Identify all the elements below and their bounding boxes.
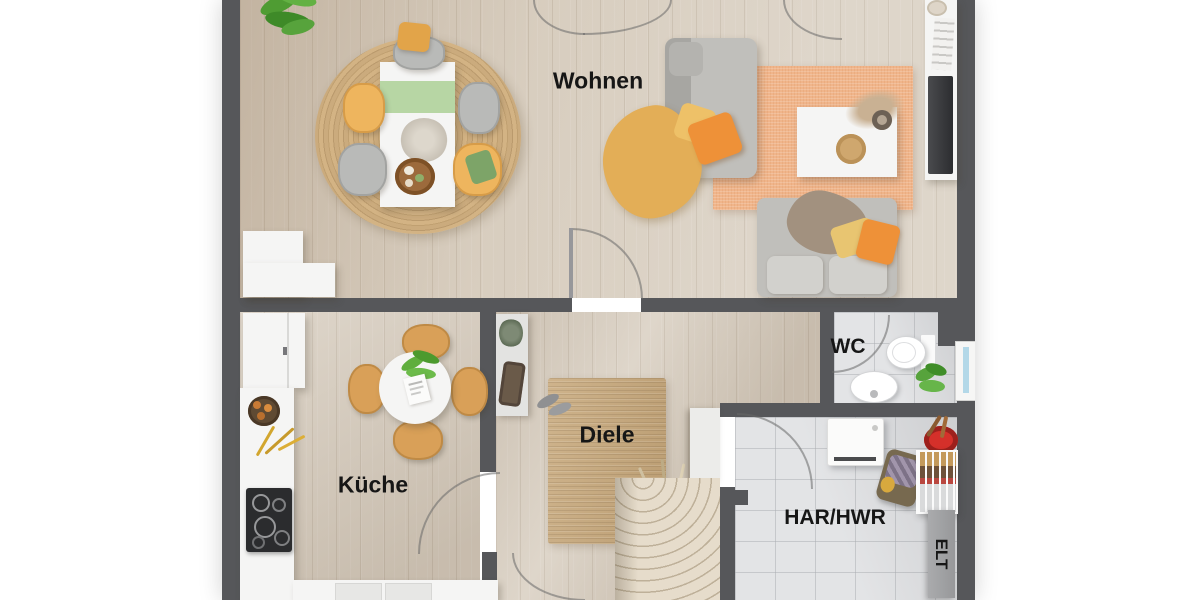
chaise-pillow: [669, 42, 703, 76]
wall-wohnen-south-right: [641, 298, 957, 312]
dining-chair-southwest: [338, 143, 387, 196]
candle: [927, 0, 947, 16]
bag: [498, 361, 526, 408]
room-label-diele: Diele: [580, 422, 635, 449]
base-cabinets: [293, 580, 498, 600]
winder-stairs: [615, 478, 720, 600]
room-label-wohnen: Wohnen: [553, 68, 643, 95]
exterior-wall-right-upper: [957, 0, 975, 341]
kitchen-chair-south: [393, 420, 443, 460]
potted-palm: [255, 0, 319, 46]
book-stack: [931, 17, 955, 70]
food: [404, 166, 414, 175]
sideboard-low: [243, 263, 335, 297]
flower-sprigs: [260, 422, 312, 464]
cabinet-handle: [283, 347, 287, 355]
burner: [272, 498, 286, 512]
floor-plan-screenshot: ELT Wohnen Küche Diele WC HAR/HWR: [0, 0, 1200, 600]
window-glass: [963, 347, 969, 393]
centerpiece-flowers: [400, 118, 448, 162]
tv: [928, 76, 953, 174]
serving-bowl: [395, 158, 435, 195]
fruit: [257, 412, 265, 420]
cabinet-front: [385, 583, 432, 600]
door-jamb-block: [728, 490, 748, 505]
exterior-wall-left: [222, 0, 240, 600]
burner: [254, 516, 276, 538]
drying-rack: [916, 450, 958, 514]
chair-cloth: [397, 21, 432, 52]
burner: [274, 530, 290, 546]
fruit: [253, 401, 261, 409]
cabinet-front: [335, 583, 382, 600]
dining-chair-west: [343, 83, 385, 133]
wall-shelf: [496, 314, 528, 416]
wc-window: [955, 341, 975, 401]
tall-cabinet: [243, 313, 305, 388]
wohnen-door-leaf: [569, 228, 573, 298]
burner: [252, 494, 270, 512]
building-outline: ELT Wohnen Küche Diele WC HAR/HWR: [222, 0, 975, 600]
stair-spandrel-wall: [690, 408, 720, 480]
kitchen-chair-east: [451, 367, 488, 416]
food: [415, 174, 424, 182]
decorative-plate: [836, 134, 866, 164]
vase: [872, 110, 892, 130]
room-label-wc: WC: [831, 335, 866, 359]
washing-machine: [827, 418, 884, 466]
sofa-cushion: [767, 256, 823, 294]
wall-wohnen-south-left: [240, 298, 572, 312]
faucet: [870, 390, 878, 398]
washer-dial: [872, 425, 878, 431]
washbasin: [850, 371, 898, 403]
leaf: [919, 379, 946, 393]
toilet-seat: [892, 342, 916, 363]
food: [405, 179, 413, 187]
wc-plant: [913, 362, 949, 400]
card-line: [410, 385, 424, 390]
green-table-runner: [380, 81, 455, 113]
card-line: [411, 391, 421, 395]
room-label-elt: ELT: [931, 539, 951, 570]
dining-chair-east: [458, 82, 500, 134]
shelf-plant: [499, 318, 523, 348]
room-label-kueche: Küche: [338, 472, 408, 499]
fruit: [264, 404, 272, 412]
sofa: [757, 198, 897, 297]
electrical-panel: ELT: [928, 510, 955, 598]
cabinet-seam: [287, 313, 289, 388]
burner: [252, 536, 265, 549]
room-label-har-hwr: HAR/HWR: [784, 506, 885, 530]
cooktop: [246, 488, 292, 552]
orange-pillow: [855, 218, 902, 266]
washer-front-slot: [834, 457, 876, 461]
